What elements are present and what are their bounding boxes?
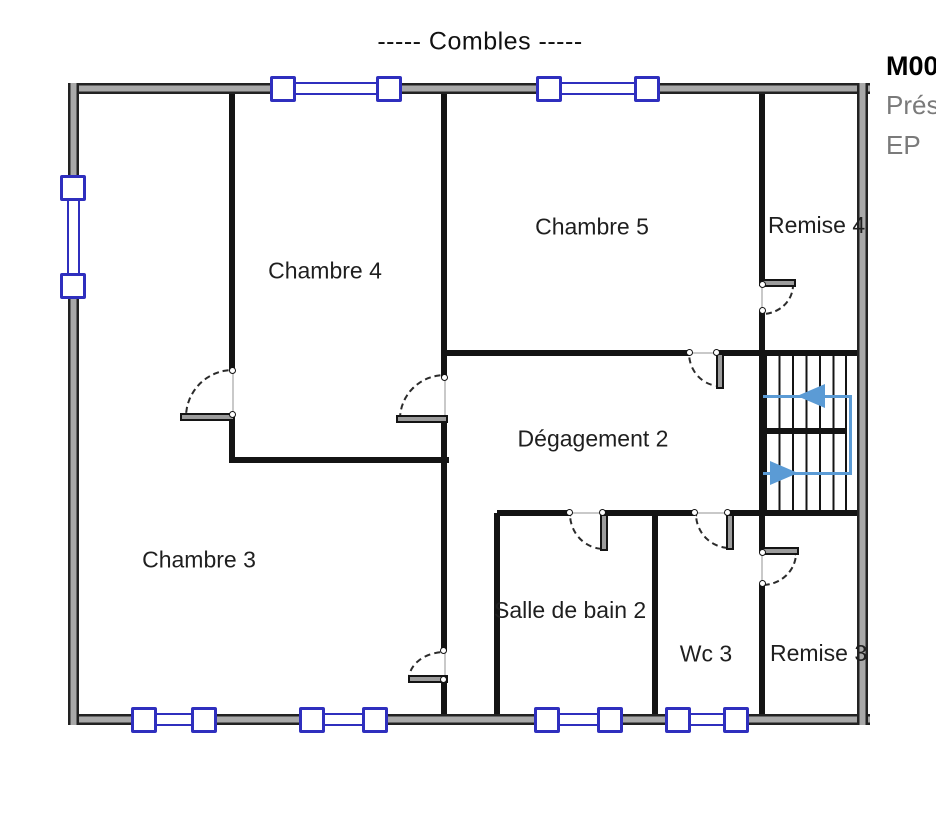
- outer-wall-right: [857, 83, 868, 725]
- door-hinge: [229, 411, 236, 418]
- door-arc: [399, 374, 445, 419]
- window-frame: [376, 76, 402, 102]
- window-frame: [536, 76, 562, 102]
- window-frame: [131, 707, 157, 733]
- door-hinge: [566, 509, 573, 516]
- door-leaf: [726, 514, 734, 550]
- outer-wall-top: [68, 83, 870, 94]
- window-glazing: [296, 82, 376, 95]
- room-label-chambre-3: Chambre 3: [142, 547, 256, 574]
- wall-chambre4-left-lower: [229, 415, 235, 463]
- door-hinge: [441, 374, 448, 381]
- wall-chambre4-bottom: [229, 457, 449, 463]
- wall-chambre5-bottom-left: [443, 350, 690, 356]
- window-glazing: [325, 713, 362, 726]
- window-frame: [299, 707, 325, 733]
- wall-chambre4-right-upper: [441, 94, 447, 378]
- window-frame: [597, 707, 623, 733]
- plan-annotation: M00 Prés EP: [886, 50, 936, 161]
- wall-remise3-left-lower: [759, 584, 765, 714]
- room-label-chambre-4: Chambre 4: [268, 258, 382, 285]
- door-hinge: [229, 367, 236, 374]
- room-label-remise-3: Remise 3: [770, 640, 867, 667]
- window-frame: [270, 76, 296, 102]
- window-frame: [723, 707, 749, 733]
- window-glazing: [560, 713, 597, 726]
- window-frame: [362, 707, 388, 733]
- door-arc: [569, 514, 604, 550]
- door-leaf: [716, 353, 724, 389]
- window-frame: [634, 76, 660, 102]
- door-hinge: [686, 349, 693, 356]
- door-hinge: [759, 281, 766, 288]
- window-frame: [60, 273, 86, 299]
- floor-title: ----- Combles -----: [377, 28, 582, 57]
- room-label-degagement-2: Dégagement 2: [518, 426, 669, 453]
- stair-landing-line: [759, 428, 847, 434]
- door-arc: [762, 285, 794, 315]
- window-glazing: [562, 82, 634, 95]
- door-hinge: [599, 509, 606, 516]
- window-frame: [60, 175, 86, 201]
- wall-sdb-top-left: [497, 510, 570, 516]
- door-hinge: [759, 549, 766, 556]
- door-leaf: [600, 514, 608, 551]
- door-hinge: [759, 307, 766, 314]
- window-glazing: [691, 713, 723, 726]
- annotation-line-3: EP: [886, 130, 936, 161]
- door-hinge: [724, 509, 731, 516]
- wall-chambre3-right-lower: [441, 682, 447, 714]
- annotation-line-2: Prés: [886, 90, 936, 121]
- wall-wc3-left: [652, 513, 658, 714]
- window-frame: [191, 707, 217, 733]
- door-arc: [185, 369, 233, 417]
- window-glazing: [157, 713, 191, 726]
- room-label-wc-3: Wc 3: [680, 641, 732, 668]
- annotation-code: M00: [886, 50, 936, 82]
- window-glazing: [67, 201, 80, 273]
- window-frame: [665, 707, 691, 733]
- wall-chambre4-left-upper: [229, 94, 235, 371]
- room-label-remise-4: Remise 4: [768, 212, 865, 239]
- door-hinge: [713, 349, 720, 356]
- floor-plan: ----- Combles ----- M00 Prés EP: [0, 0, 936, 819]
- stair-path-connector: [849, 395, 852, 475]
- door-hinge: [440, 647, 447, 654]
- room-label-chambre-5: Chambre 5: [535, 214, 649, 241]
- door-leaf: [761, 547, 799, 555]
- door-arc: [762, 553, 797, 586]
- window-frame: [534, 707, 560, 733]
- stair-entry-arrow-icon: [770, 461, 798, 485]
- door-arc: [695, 514, 730, 549]
- door-hinge: [440, 676, 447, 683]
- wall-sdb-top-mid: [603, 510, 695, 516]
- stair-tread-edge: [845, 356, 847, 510]
- wall-remise4-left-upper: [759, 94, 765, 286]
- door-leaf: [180, 413, 235, 421]
- door-leaf: [761, 279, 796, 287]
- wall-stair-bottom: [728, 510, 857, 516]
- room-label-salle-de-bain-2: Salle de bain 2: [494, 597, 646, 624]
- wall-chambre3-right: [441, 417, 447, 651]
- stair-up-arrow-icon: [797, 384, 825, 408]
- door-hinge: [759, 580, 766, 587]
- door-hinge: [691, 509, 698, 516]
- door-leaf: [396, 415, 448, 423]
